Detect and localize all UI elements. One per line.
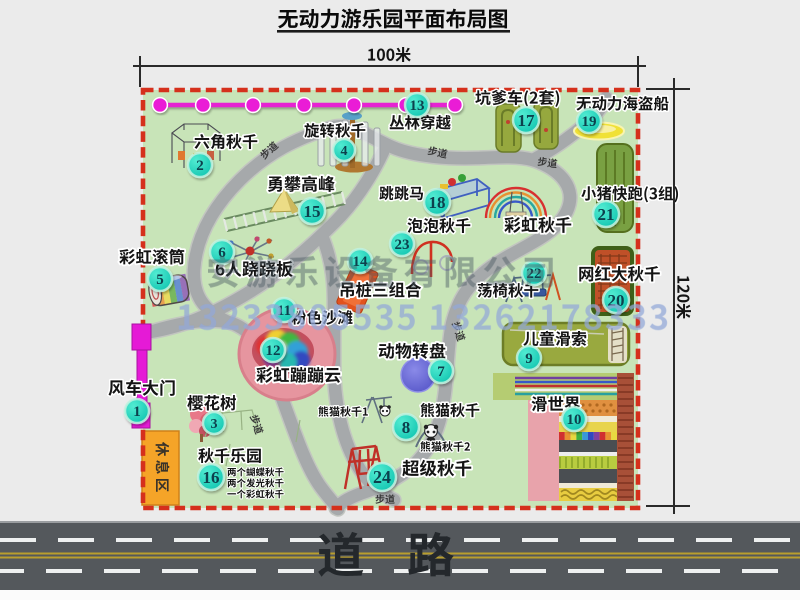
svg-text:9: 9 — [525, 351, 533, 367]
svg-text:7: 7 — [437, 364, 445, 380]
svg-text:5: 5 — [156, 272, 164, 288]
svg-text:19: 19 — [582, 114, 597, 130]
svg-text:23: 23 — [395, 237, 410, 253]
svg-text:4: 4 — [341, 144, 348, 159]
svg-text:18: 18 — [429, 193, 446, 212]
svg-text:12: 12 — [266, 343, 281, 359]
svg-text:17: 17 — [518, 111, 536, 130]
svg-text:10: 10 — [567, 412, 582, 428]
svg-text:16: 16 — [203, 468, 220, 487]
svg-text:15: 15 — [304, 202, 321, 221]
svg-text:2: 2 — [196, 158, 204, 174]
svg-text:1: 1 — [133, 404, 141, 420]
svg-text:24: 24 — [373, 467, 391, 487]
svg-text:21: 21 — [598, 205, 615, 224]
svg-text:3: 3 — [211, 417, 218, 432]
svg-text:8: 8 — [402, 418, 411, 437]
svg-text:13: 13 — [410, 98, 425, 114]
